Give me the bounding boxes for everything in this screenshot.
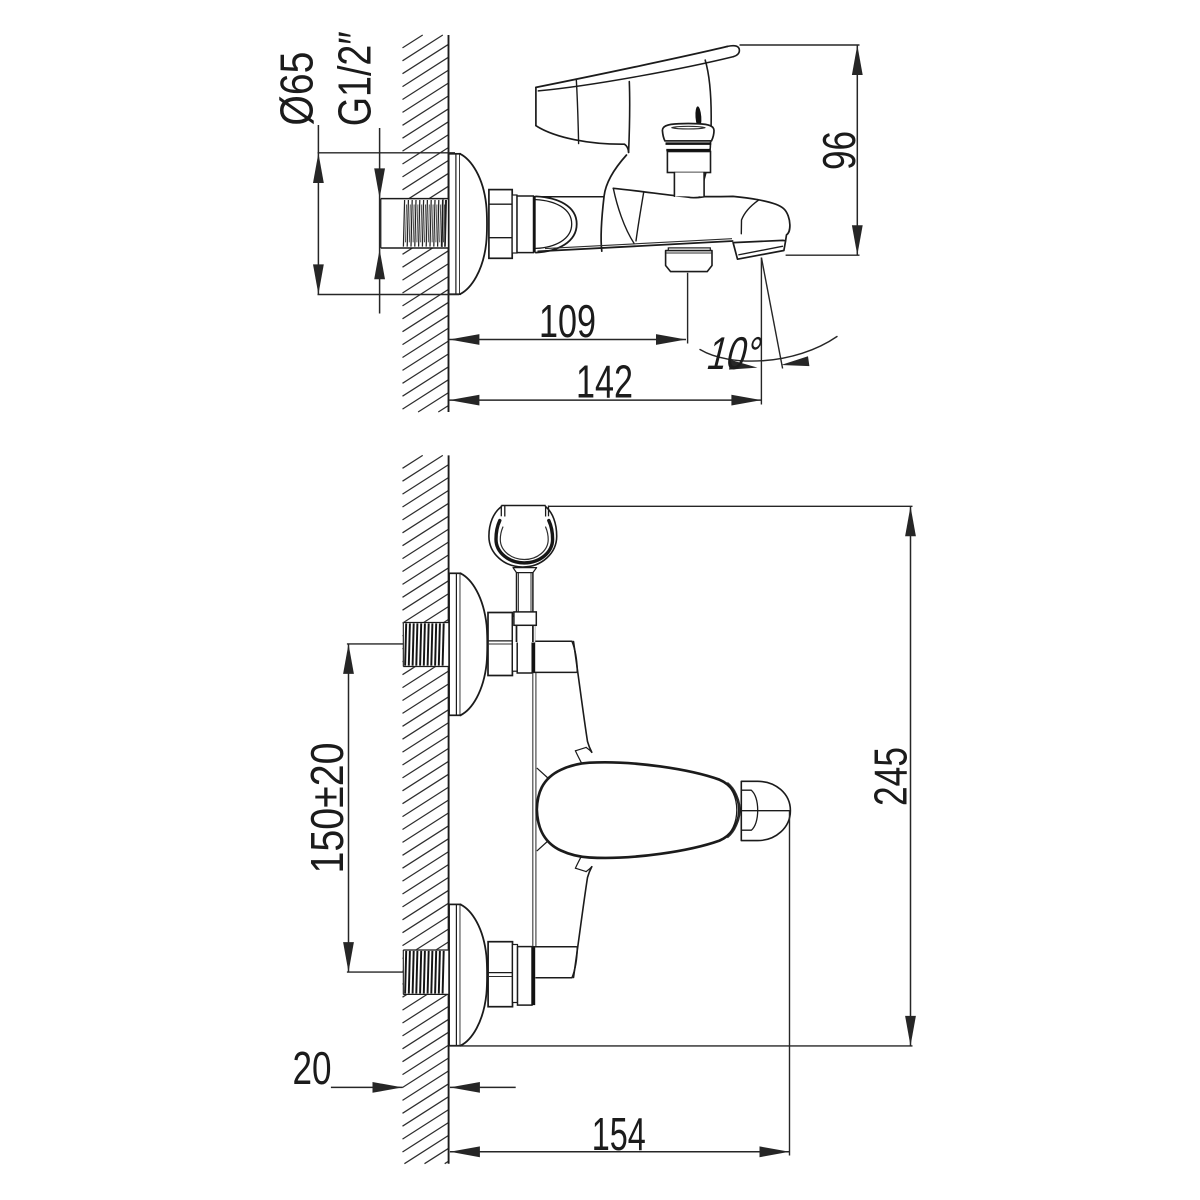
svg-text:154: 154 bbox=[592, 1108, 646, 1160]
svg-text:109: 109 bbox=[539, 295, 596, 347]
svg-text:142: 142 bbox=[576, 355, 633, 407]
svg-text:150±20: 150±20 bbox=[301, 743, 353, 874]
svg-text:Ø65: Ø65 bbox=[271, 52, 323, 126]
svg-text:20: 20 bbox=[293, 1042, 332, 1094]
svg-text:96: 96 bbox=[813, 131, 865, 170]
svg-text:G1/2″: G1/2″ bbox=[329, 31, 381, 126]
svg-text:245: 245 bbox=[865, 747, 917, 806]
